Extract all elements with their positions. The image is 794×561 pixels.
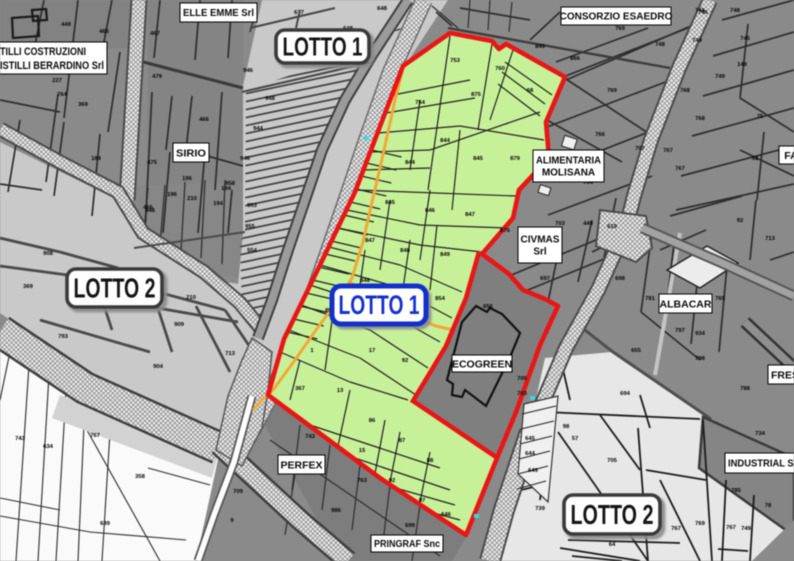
svg-text:92: 92 xyxy=(402,358,409,364)
svg-text:793: 793 xyxy=(58,334,69,340)
svg-text:639: 639 xyxy=(100,521,111,527)
svg-text:467: 467 xyxy=(150,31,161,37)
svg-text:713: 713 xyxy=(225,351,236,357)
svg-text:703: 703 xyxy=(555,221,566,227)
svg-text:946: 946 xyxy=(240,156,251,162)
svg-text:934: 934 xyxy=(695,331,706,337)
svg-text:554: 554 xyxy=(247,248,258,254)
svg-text:148: 148 xyxy=(737,62,748,68)
svg-text:SIRIO: SIRIO xyxy=(176,147,206,159)
svg-text:FRES: FRES xyxy=(771,369,794,381)
svg-text:449: 449 xyxy=(61,22,72,28)
svg-text:765: 765 xyxy=(715,296,726,302)
svg-text:748: 748 xyxy=(655,42,666,48)
svg-text:INDUSTRIAL SE: INDUSTRIAL SE xyxy=(728,459,794,470)
svg-text:358: 358 xyxy=(135,474,146,480)
svg-text:619: 619 xyxy=(607,224,618,230)
svg-text:PRINGRAF Snc: PRINGRAF Snc xyxy=(374,539,440,550)
svg-text:854: 854 xyxy=(435,296,446,302)
svg-text:656: 656 xyxy=(483,304,494,310)
svg-text:227: 227 xyxy=(52,78,63,84)
svg-text:78: 78 xyxy=(765,503,772,509)
svg-text:ALIMENTARIA: ALIMENTARIA xyxy=(536,156,601,167)
svg-text:734: 734 xyxy=(755,431,766,437)
svg-text:369: 369 xyxy=(78,102,89,108)
svg-text:57: 57 xyxy=(572,436,579,442)
svg-text:98: 98 xyxy=(563,424,570,430)
svg-text:879: 879 xyxy=(510,156,521,162)
svg-text:LOTTO 2: LOTTO 2 xyxy=(571,499,654,530)
svg-text:845: 845 xyxy=(473,156,484,162)
svg-text:646: 646 xyxy=(441,512,452,518)
svg-text:846: 846 xyxy=(425,208,436,214)
svg-text:ISTILLI BERARDINO Srl: ISTILLI BERARDINO Srl xyxy=(0,60,104,72)
svg-text:848: 848 xyxy=(400,248,411,254)
svg-text:LOTTO 1: LOTTO 1 xyxy=(339,290,420,320)
svg-text:705: 705 xyxy=(517,376,528,382)
svg-text:767: 767 xyxy=(90,433,101,439)
svg-text:466: 466 xyxy=(199,117,210,123)
svg-text:75: 75 xyxy=(757,114,764,120)
svg-text:ELLE EMME Srl: ELLE EMME Srl xyxy=(183,8,254,19)
svg-text:194: 194 xyxy=(213,201,224,207)
svg-text:944: 944 xyxy=(253,126,264,132)
svg-text:904: 904 xyxy=(153,364,164,370)
svg-text:LOTTO 1: LOTTO 1 xyxy=(283,31,363,61)
svg-text:769: 769 xyxy=(615,26,626,32)
svg-text:746: 746 xyxy=(695,8,706,14)
svg-text:743: 743 xyxy=(305,434,316,440)
svg-text:847: 847 xyxy=(465,212,476,218)
svg-text:475: 475 xyxy=(147,160,158,166)
svg-text:184: 184 xyxy=(91,156,102,162)
svg-text:449: 449 xyxy=(583,221,594,227)
svg-text:713: 713 xyxy=(765,236,776,242)
svg-text:ECOGREEN: ECOGREEN xyxy=(452,358,512,370)
svg-text:705: 705 xyxy=(607,458,618,464)
svg-text:849: 849 xyxy=(440,252,451,258)
svg-text:17: 17 xyxy=(369,348,376,354)
svg-text:767: 767 xyxy=(675,166,686,172)
svg-text:749: 749 xyxy=(741,526,752,532)
svg-text:909: 909 xyxy=(174,322,185,328)
svg-text:875: 875 xyxy=(471,92,482,98)
svg-text:760: 760 xyxy=(495,66,506,72)
svg-text:PERFEX: PERFEX xyxy=(280,459,322,471)
svg-text:798: 798 xyxy=(695,356,706,362)
svg-text:767: 767 xyxy=(726,525,737,531)
svg-text:64: 64 xyxy=(609,542,616,548)
svg-text:92: 92 xyxy=(389,478,396,484)
svg-text:767: 767 xyxy=(671,526,682,532)
svg-text:709: 709 xyxy=(233,489,244,495)
svg-text:781: 781 xyxy=(645,296,656,302)
svg-text:88: 88 xyxy=(427,458,434,464)
svg-text:FA: FA xyxy=(784,150,794,162)
svg-text:707: 707 xyxy=(635,146,646,152)
svg-text:849: 849 xyxy=(535,44,546,50)
svg-text:767: 767 xyxy=(663,148,674,154)
svg-text:948: 948 xyxy=(265,96,276,102)
svg-text:745: 745 xyxy=(740,36,751,42)
svg-text:92: 92 xyxy=(737,218,744,224)
svg-text:369: 369 xyxy=(23,284,34,290)
svg-text:946: 946 xyxy=(243,68,254,74)
svg-text:703: 703 xyxy=(517,391,528,397)
svg-text:644: 644 xyxy=(525,451,536,457)
svg-text:785: 785 xyxy=(731,488,742,494)
svg-text:CONSORZIO ESAEDRO: CONSORZIO ESAEDRO xyxy=(560,12,673,23)
svg-text:465: 465 xyxy=(99,29,110,35)
svg-text:210: 210 xyxy=(186,295,197,301)
svg-text:848: 848 xyxy=(360,278,371,284)
svg-text:768: 768 xyxy=(680,88,691,94)
svg-text:986: 986 xyxy=(331,508,342,514)
svg-text:764: 764 xyxy=(57,92,68,98)
svg-text:769: 769 xyxy=(607,88,618,94)
svg-text:866: 866 xyxy=(570,56,581,62)
svg-text:847: 847 xyxy=(365,238,376,244)
svg-text:698: 698 xyxy=(615,276,626,282)
svg-text:908: 908 xyxy=(43,251,54,257)
svg-text:694: 694 xyxy=(620,391,631,397)
svg-text:649: 649 xyxy=(528,468,539,474)
svg-text:86: 86 xyxy=(369,418,376,424)
svg-text:749: 749 xyxy=(715,74,726,80)
svg-text:ALBACAR: ALBACAR xyxy=(660,298,712,310)
svg-text:743: 743 xyxy=(15,436,26,442)
svg-text:844: 844 xyxy=(440,138,451,144)
svg-text:196: 196 xyxy=(167,192,178,198)
svg-text:748: 748 xyxy=(730,8,741,14)
svg-text:697: 697 xyxy=(540,276,551,282)
svg-text:LOTTO 2: LOTTO 2 xyxy=(74,273,156,304)
svg-text:763: 763 xyxy=(357,478,368,484)
svg-text:753: 753 xyxy=(450,58,461,64)
svg-text:210: 210 xyxy=(187,196,198,202)
svg-text:754: 754 xyxy=(415,100,426,106)
svg-text:739: 739 xyxy=(535,506,546,512)
svg-text:645: 645 xyxy=(525,436,536,442)
svg-text:699: 699 xyxy=(405,523,416,529)
svg-text:TILLI COSTRUZIONI: TILLI COSTRUZIONI xyxy=(0,46,86,58)
svg-text:367: 367 xyxy=(295,386,306,392)
svg-text:958: 958 xyxy=(225,181,236,187)
svg-text:Srl: Srl xyxy=(533,247,547,258)
svg-text:768: 768 xyxy=(695,116,706,122)
svg-text:634: 634 xyxy=(43,444,54,450)
svg-text:955: 955 xyxy=(245,224,256,230)
svg-text:13: 13 xyxy=(337,388,344,394)
svg-text:448: 448 xyxy=(145,208,156,214)
svg-text:MOLISANA: MOLISANA xyxy=(542,168,595,179)
svg-text:788: 788 xyxy=(740,386,751,392)
svg-text:655: 655 xyxy=(631,348,642,354)
svg-text:68: 68 xyxy=(527,88,534,94)
svg-text:CIVMAS: CIVMAS xyxy=(521,235,560,246)
svg-text:953: 953 xyxy=(247,203,258,209)
svg-text:648: 648 xyxy=(377,6,388,12)
svg-text:87: 87 xyxy=(399,438,406,444)
svg-text:797: 797 xyxy=(675,328,686,334)
svg-text:876: 876 xyxy=(500,228,511,234)
svg-text:92: 92 xyxy=(752,156,759,162)
svg-text:766: 766 xyxy=(595,132,606,138)
svg-text:479: 479 xyxy=(152,74,163,80)
svg-text:844: 844 xyxy=(405,160,416,166)
svg-text:845: 845 xyxy=(385,200,396,206)
svg-text:749: 749 xyxy=(692,38,703,44)
svg-text:15: 15 xyxy=(359,448,366,454)
svg-text:97: 97 xyxy=(419,498,426,504)
svg-text:196: 196 xyxy=(182,176,193,182)
svg-text:769: 769 xyxy=(695,521,706,527)
